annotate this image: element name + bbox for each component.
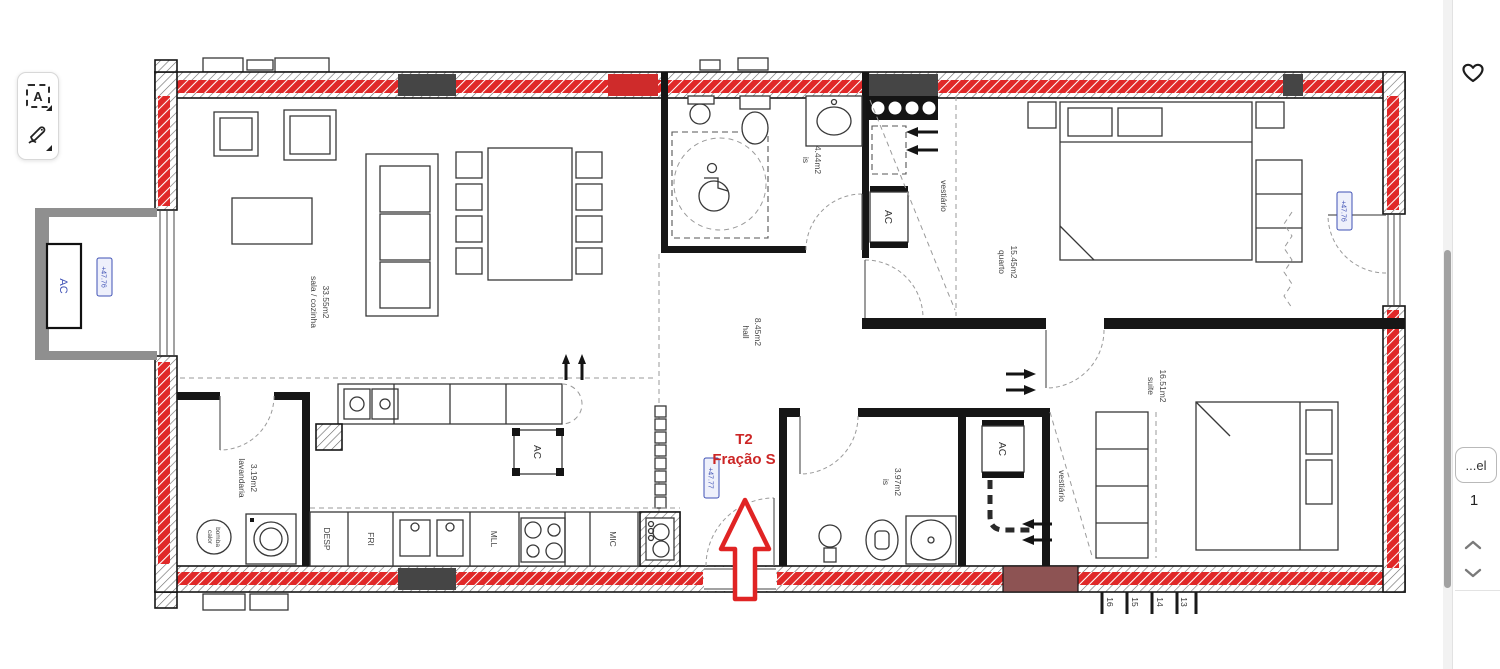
hall-area-label: 8.45m2 (753, 318, 763, 347)
sala-name-label: sala / cozinha (309, 276, 319, 328)
bedroom-furniture (1028, 102, 1302, 308)
truncated-panel-button[interactable]: ...el (1455, 447, 1497, 483)
hall-name-label: hall (741, 325, 751, 338)
hall-radiator (655, 406, 666, 508)
fridge-label: FRI (366, 532, 376, 546)
is-top-name-label: is (801, 157, 811, 163)
draw-tool-button[interactable] (25, 123, 51, 149)
page-number: 1 (1453, 492, 1495, 509)
level-label-left: +47.76 (100, 266, 107, 288)
stair-step-16: 16 (1105, 597, 1115, 607)
level-label-hall: +47.77 (707, 467, 714, 489)
tool-expand-indicator (46, 105, 52, 111)
ac-label-closet-top: AC (882, 210, 893, 224)
quarto-name-label: quarto (997, 250, 1007, 274)
floor-plan-canvas[interactable]: AC (0, 0, 1452, 669)
is-bottom-area-label: 3.97m2 (893, 468, 903, 497)
pantry-label: DESP (322, 527, 332, 550)
balcony-left: AC (35, 208, 157, 360)
bathroom-top-fixtures (672, 96, 862, 238)
stair-step-14: 14 (1155, 597, 1165, 607)
panel-divider (1455, 590, 1500, 591)
living-room-furniture (180, 110, 659, 564)
chevron-up-icon[interactable] (1463, 538, 1483, 556)
chevron-down-icon[interactable] (1463, 566, 1483, 584)
stair-step-13: 13 (1179, 597, 1189, 607)
is-bottom-name-label: is (881, 479, 891, 485)
suite-name-label: suite (1146, 377, 1156, 395)
vestiario-top-label: vestiário (939, 180, 949, 212)
microwave-label: MIC (608, 531, 618, 547)
favorite-heart-icon[interactable] (1461, 62, 1485, 89)
unit-label: T2 Fração S (712, 431, 775, 468)
viewer-stage: AC (0, 0, 1500, 669)
bathroom-bottom-fixtures (819, 516, 956, 564)
lavandaria-area-label: 3.19m2 (249, 464, 259, 493)
stair-step-15: 15 (1130, 597, 1140, 607)
floor-plan-drawing: AC (0, 0, 1452, 669)
is-top-area-label: 4.44m2 (813, 146, 823, 175)
scrollbar-thumb[interactable] (1444, 250, 1451, 588)
suite-furniture (1006, 369, 1338, 558)
kitchen-island: AC (316, 354, 666, 508)
quarto-area-label: 15.45m2 (1009, 245, 1019, 278)
ac-label-balcony: AC (57, 278, 69, 293)
text-select-tool-button[interactable]: A (25, 83, 51, 109)
suite-area-label: 16.51m2 (1158, 369, 1168, 402)
annotation-toolbar: A (17, 72, 59, 160)
tool-expand-indicator (46, 145, 52, 151)
heat-pump-label-2: calor (206, 530, 213, 545)
room-labels: 33.55m2 sala / cozinha 3.19m2 lavandaria… (206, 146, 1168, 551)
unit-label-line1: T2 (735, 431, 753, 448)
level-label-right: +47.76 (1340, 200, 1347, 222)
closet-bottom: AC (982, 412, 1092, 556)
vertical-scrollbar[interactable] (1443, 0, 1453, 669)
unit-label-line2: Fração S (712, 451, 775, 468)
right-panel: ...el 1 (1453, 0, 1500, 669)
heat-pump-label-1: bomba (214, 527, 221, 547)
dishwasher-label: MLL (489, 531, 499, 548)
lavandaria-name-label: lavandaria (237, 458, 247, 497)
vestiario-bottom-label: vestiário (1057, 470, 1067, 502)
ac-label-kitchen: AC (531, 445, 542, 459)
ac-label-closet-bottom: AC (996, 442, 1007, 456)
stairs: 16 15 14 13 (1102, 592, 1196, 614)
sala-area-label: 33.55m2 (321, 285, 331, 318)
